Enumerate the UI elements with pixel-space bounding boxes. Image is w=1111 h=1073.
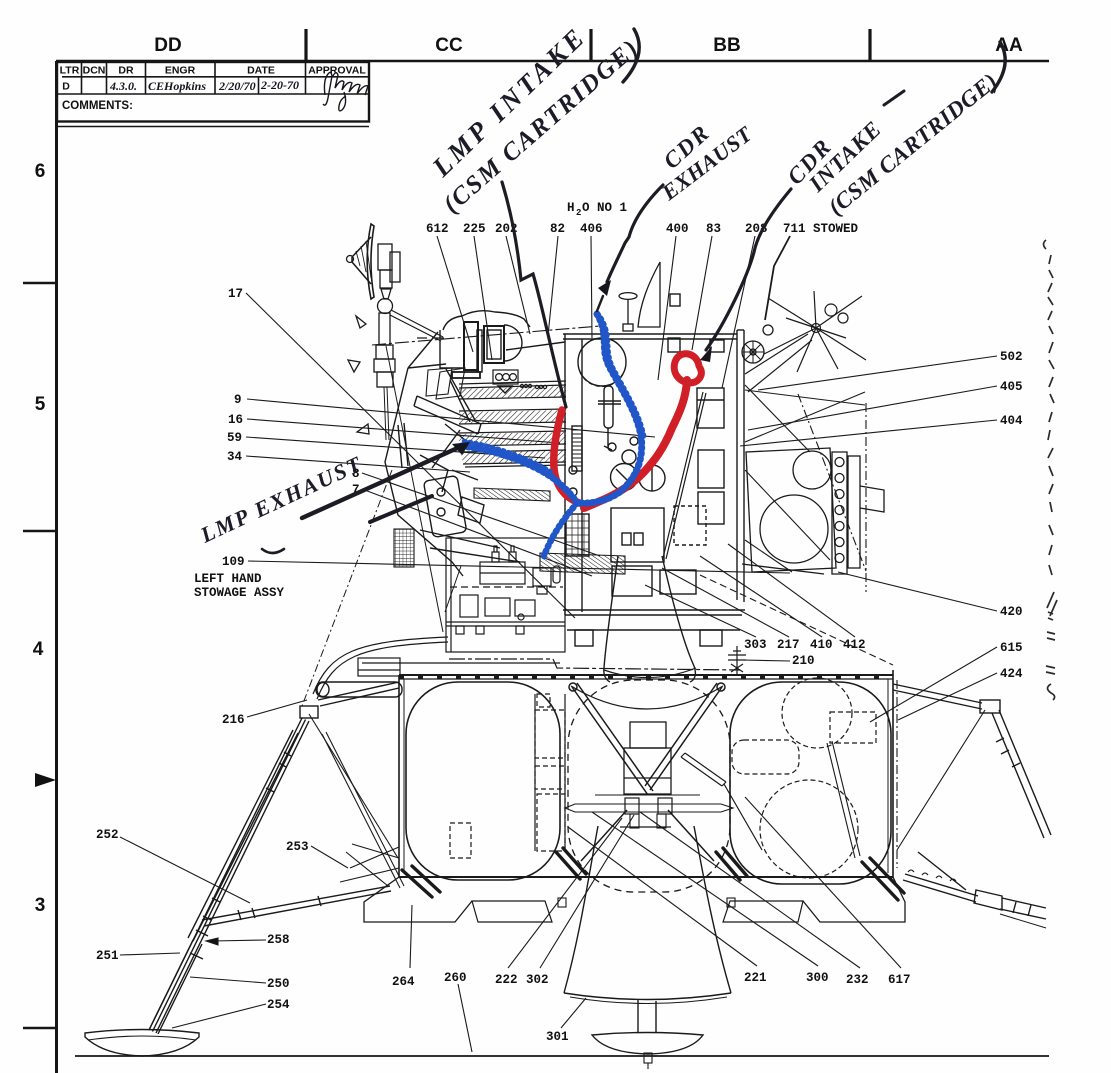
svg-text:612: 612 (426, 222, 449, 236)
svg-text:406: 406 (580, 222, 603, 236)
svg-text:410: 410 (810, 638, 833, 652)
svg-text:216: 216 (222, 713, 245, 727)
svg-text:502: 502 (1000, 350, 1023, 364)
svg-text:222: 222 (495, 973, 518, 987)
svg-text:258: 258 (267, 933, 290, 947)
svg-text:250: 250 (267, 977, 290, 991)
svg-text:260: 260 (444, 971, 467, 985)
svg-text:2-20-70: 2-20-70 (260, 78, 299, 92)
svg-text:405: 405 (1000, 380, 1023, 394)
svg-text:217: 217 (777, 638, 800, 652)
svg-text:ENGR: ENGR (165, 65, 196, 77)
svg-text:221: 221 (744, 971, 767, 985)
svg-text:9: 9 (234, 393, 242, 407)
svg-text:109: 109 (222, 555, 245, 569)
svg-text:BB: BB (713, 35, 740, 56)
svg-text:DCN: DCN (83, 65, 106, 77)
svg-text:302: 302 (526, 973, 549, 987)
svg-text:DATE: DATE (247, 65, 275, 77)
svg-text:17: 17 (228, 287, 243, 301)
svg-text:711 STOWED: 711 STOWED (783, 222, 859, 236)
svg-text:CC: CC (435, 35, 463, 56)
svg-text:82: 82 (550, 222, 565, 236)
svg-text:34: 34 (227, 450, 243, 464)
svg-text:4: 4 (33, 639, 44, 660)
svg-text:COMMENTS:: COMMENTS: (62, 100, 133, 112)
svg-text:2: 2 (576, 208, 581, 218)
svg-text:2/20/70: 2/20/70 (218, 79, 256, 93)
svg-text:D: D (62, 81, 70, 93)
svg-text:AA: AA (995, 35, 1023, 56)
svg-text:83: 83 (706, 222, 721, 236)
svg-text:300: 300 (806, 971, 829, 985)
svg-text:617: 617 (888, 973, 911, 987)
svg-text:254: 254 (267, 998, 290, 1012)
svg-text:16: 16 (228, 413, 243, 427)
svg-text:H: H (567, 201, 575, 215)
svg-text:404: 404 (1000, 414, 1023, 428)
svg-text:301: 301 (546, 1030, 569, 1044)
svg-text:4.3.0.: 4.3.0. (109, 79, 137, 93)
svg-text:59: 59 (227, 431, 242, 445)
svg-text:O NO 1: O NO 1 (582, 201, 627, 215)
svg-text:232: 232 (846, 973, 869, 987)
svg-text:264: 264 (392, 975, 415, 989)
svg-text:DR: DR (118, 65, 134, 77)
svg-text:400: 400 (666, 222, 689, 236)
svg-text:3: 3 (35, 895, 46, 916)
svg-text:LTR: LTR (60, 65, 80, 77)
svg-text:615: 615 (1000, 641, 1023, 655)
svg-text:CEHopkins: CEHopkins (148, 79, 206, 93)
svg-text:210: 210 (792, 654, 815, 668)
svg-text:252: 252 (96, 828, 119, 842)
svg-text:424: 424 (1000, 667, 1023, 681)
svg-text:LEFT HAND: LEFT HAND (194, 572, 262, 586)
svg-text:303: 303 (744, 638, 767, 652)
svg-text:STOWAGE ASSY: STOWAGE ASSY (194, 586, 285, 600)
svg-text:253: 253 (286, 840, 309, 854)
svg-text:6: 6 (35, 161, 46, 182)
svg-text:420: 420 (1000, 605, 1023, 619)
svg-text:DD: DD (154, 35, 181, 56)
svg-text:412: 412 (843, 638, 866, 652)
svg-text:5: 5 (35, 394, 46, 415)
svg-text:251: 251 (96, 949, 119, 963)
svg-text:225: 225 (463, 222, 486, 236)
